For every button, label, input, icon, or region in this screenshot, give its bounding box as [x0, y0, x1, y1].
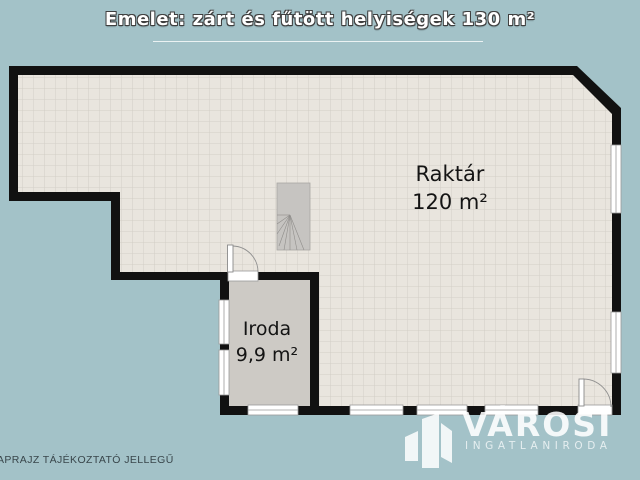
iroda-room-name: Iroda: [198, 316, 336, 342]
windows-bottom-wall: [248, 405, 538, 415]
iroda-room-label: Iroda 9,9 m²: [198, 316, 336, 368]
staircase: [277, 183, 310, 250]
iroda-room-area: 9,9 m²: [198, 342, 336, 368]
raktar-room-label: Raktár 120 m²: [360, 160, 540, 216]
raktar-room-area: 120 m²: [360, 188, 540, 216]
floor-plan: [0, 0, 640, 480]
disclaimer-text: APRAJZ TÁJÉKOZTATÓ JELLEGŰ: [0, 454, 174, 466]
raktar-room-name: Raktár: [360, 160, 540, 188]
